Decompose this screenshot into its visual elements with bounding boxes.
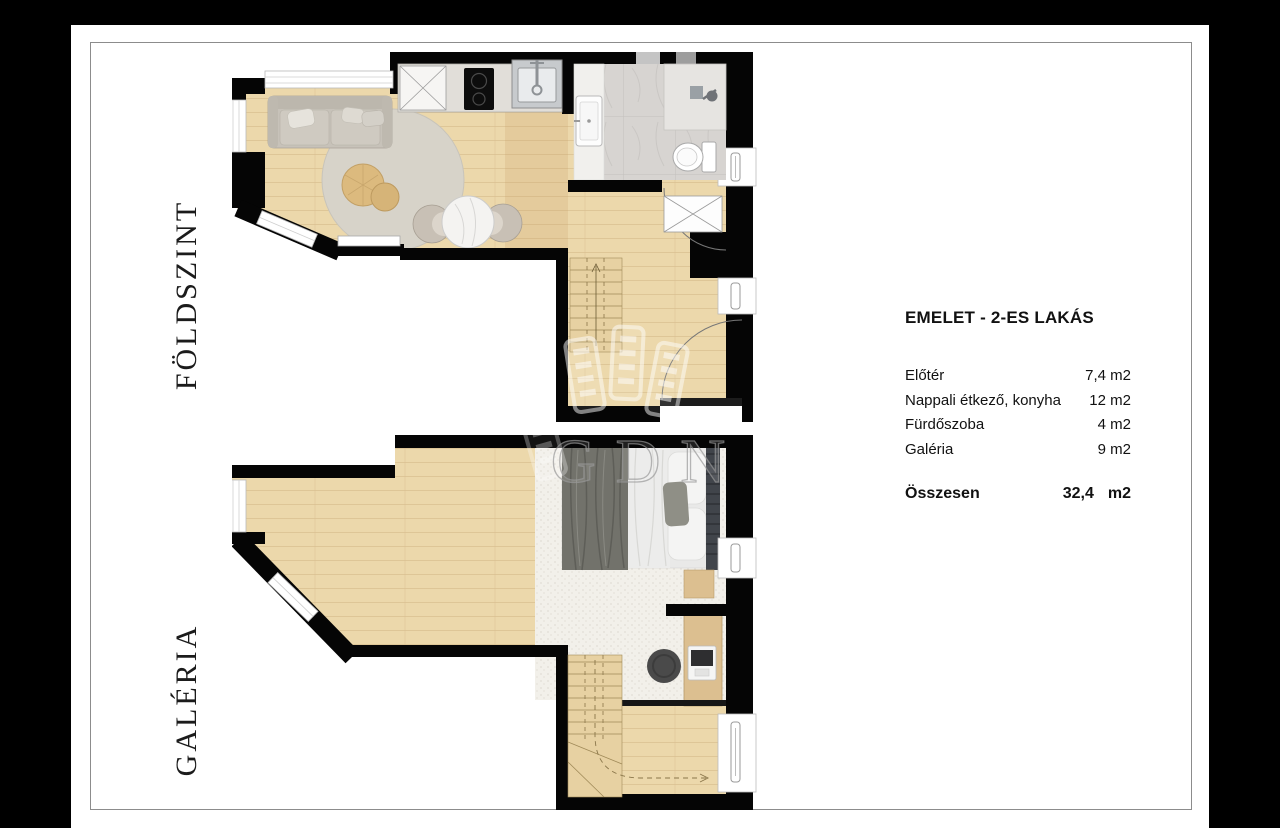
room-name: Fürdőszoba <box>905 413 984 438</box>
floorplan-page: FÖLDSZINT GALÉRIA <box>0 0 1280 828</box>
radiator-window-3 <box>718 538 756 578</box>
toilet <box>673 142 716 172</box>
floor-plan-gallery <box>232 433 762 813</box>
stairs-ground <box>570 258 622 352</box>
total-label: Összesen <box>905 483 980 505</box>
dining-table <box>442 196 494 248</box>
total-value: 32,4 <box>1063 483 1094 505</box>
radiator-window-2 <box>718 278 756 314</box>
radiator-window-4 <box>718 714 756 792</box>
bed <box>562 443 720 570</box>
legend-total-row: Összesen 32,4 m2 <box>905 483 1131 505</box>
whiteout-overlay <box>857 516 1206 800</box>
black-bar-left <box>0 0 71 828</box>
pouf <box>647 649 681 683</box>
room-name: Galéria <box>905 438 953 463</box>
shower <box>664 64 726 130</box>
closet-box <box>664 196 722 232</box>
legend-row: Nappali étkező, konyha 12 m2 <box>905 389 1131 414</box>
legend-row: Galéria 9 m2 <box>905 438 1131 463</box>
legend-title: EMELET - 2-ES LAKÁS <box>905 308 1131 328</box>
floor-plan-ground <box>232 52 762 422</box>
room-area: 9 m2 <box>1098 438 1131 463</box>
room-area: 7,4 m2 <box>1085 364 1131 389</box>
room-area: 12 m2 <box>1089 389 1131 414</box>
room-name: Nappali étkező, konyha <box>905 389 1061 414</box>
desk <box>684 608 722 706</box>
black-bar-right <box>1209 0 1280 828</box>
blanket <box>562 446 628 570</box>
room-name: Előtér <box>905 364 944 389</box>
cushion <box>662 481 689 527</box>
legend-rows: Előtér 7,4 m2 Nappali étkező, konyha 12 … <box>905 364 1131 462</box>
legend-row: Előtér 7,4 m2 <box>905 364 1131 389</box>
area-legend: EMELET - 2-ES LAKÁS Előtér 7,4 m2 Nappal… <box>905 308 1131 505</box>
bathroom-sink <box>574 96 602 146</box>
floor-label-gallery: GALÉRIA <box>167 610 207 790</box>
duvet <box>628 446 670 568</box>
room-area: 4 m2 <box>1098 413 1131 438</box>
floor-label-ground: FÖLDSZINT <box>167 185 207 405</box>
kitchen-counter <box>398 60 562 112</box>
kitchen-sink <box>512 60 562 108</box>
laptop <box>688 646 716 680</box>
nightstand <box>684 570 714 598</box>
total-unit: m2 <box>1108 483 1131 505</box>
legend-row: Fürdőszoba 4 m2 <box>905 413 1131 438</box>
black-bar-top <box>0 0 1280 25</box>
sofa <box>268 96 392 148</box>
